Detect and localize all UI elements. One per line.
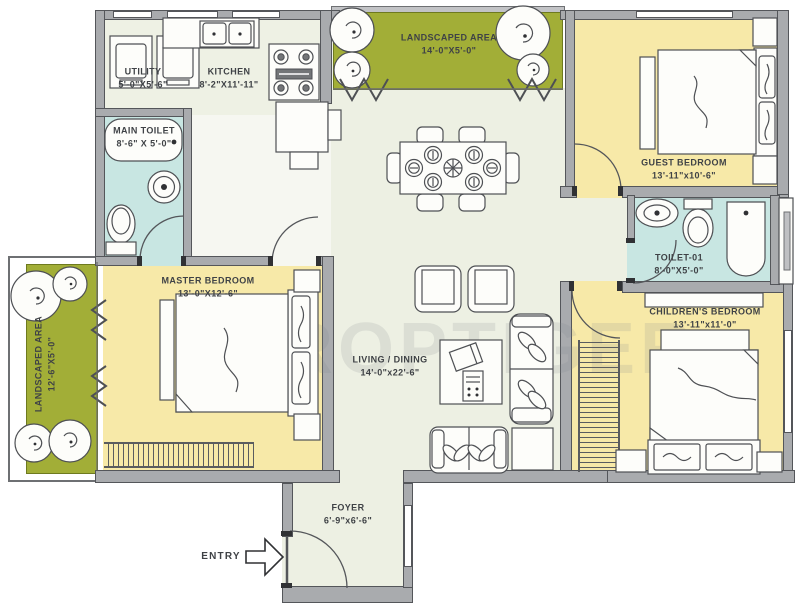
wall xyxy=(282,586,413,603)
wall xyxy=(560,186,577,198)
window xyxy=(784,330,792,433)
window xyxy=(167,11,218,18)
wall xyxy=(770,195,780,285)
wall xyxy=(627,195,635,242)
entry-arrow xyxy=(246,539,283,575)
door-gap xyxy=(572,281,622,293)
wall xyxy=(183,256,272,266)
room-label-main-toilet: MAIN TOILET 8'-6" X 5'-0" xyxy=(113,124,175,149)
floor-plan: PROPTIGER xyxy=(0,0,800,603)
wall xyxy=(95,10,105,262)
wall xyxy=(622,281,793,293)
door-gap xyxy=(282,537,293,586)
entry-label: ENTRY xyxy=(201,550,241,564)
room-label-guest-bedroom: GUEST BEDROOM 13'-11"x10'-6" xyxy=(641,156,727,181)
wall xyxy=(95,108,191,117)
room-label-landscaped-top: LANDSCAPED AREA 14'-0"X5'-0" xyxy=(401,31,497,56)
door-gap xyxy=(627,242,635,281)
window xyxy=(113,11,152,18)
corridor-floor xyxy=(191,115,335,256)
room-label-foyer: FOYER 6'-9"x6'-6" xyxy=(324,501,372,526)
room-label-utility: UTILITY 5'-0"X5'-6" xyxy=(118,65,167,90)
room-label-living-dining: LIVING / DINING 14'-0"x22'-6" xyxy=(352,353,427,378)
wall xyxy=(95,256,140,266)
wall xyxy=(183,108,192,265)
room-label-kitchen: KITCHEN 8'-2"X11'-11" xyxy=(199,65,258,90)
room-label-toilet-01: TOILET-01 8'-0"X5'-0" xyxy=(654,251,703,276)
wall xyxy=(282,483,293,537)
watermark: PROPTIGER xyxy=(228,308,697,390)
wall xyxy=(565,10,575,198)
children-wardrobe xyxy=(578,340,620,472)
door-gap xyxy=(140,256,183,266)
wall xyxy=(95,470,340,483)
master-wardrobe xyxy=(104,442,254,468)
foyer-opening-floor xyxy=(340,470,403,483)
wall xyxy=(320,10,332,104)
door-gap xyxy=(272,256,318,266)
service-shaft xyxy=(779,198,793,284)
window xyxy=(232,11,280,18)
passage-floor xyxy=(565,198,633,283)
room-label-children-bedroom: CHILDREN'S BEDROOM 13'-11"x11'-0" xyxy=(649,305,760,330)
window xyxy=(636,11,733,18)
wall xyxy=(622,186,789,198)
foyer-floor xyxy=(293,483,403,586)
door-gap xyxy=(575,186,622,198)
room-label-landscaped-left: LANDSCAPED AREA 12'-6"X5'-0" xyxy=(32,316,57,412)
room-label-master-bedroom: MASTER BEDROOM 13'-0"X12'-6" xyxy=(161,274,254,299)
window xyxy=(404,505,412,567)
wall xyxy=(777,10,789,195)
